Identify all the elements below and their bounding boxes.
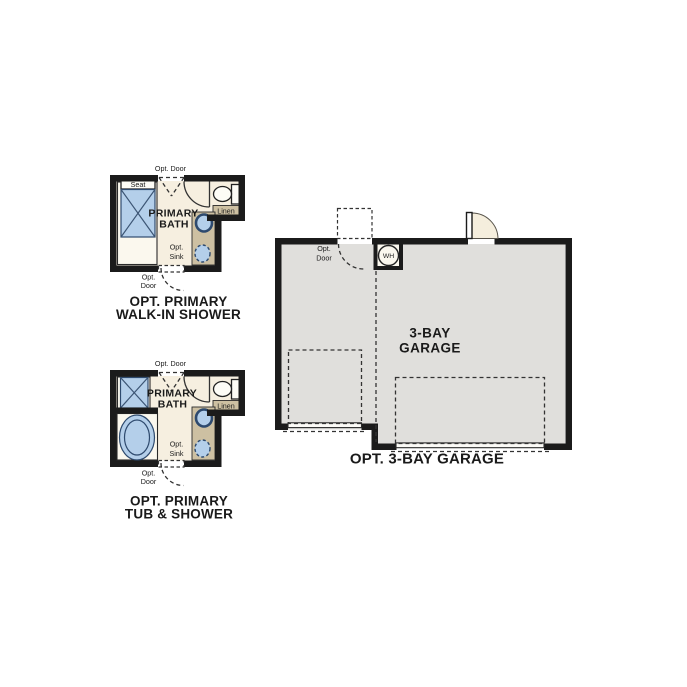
wall-segment	[184, 266, 222, 273]
opt-door-bottom-label: Door	[141, 477, 157, 486]
plan-title: WALK-IN SHOWER	[116, 307, 241, 322]
opt-door-label: Door	[316, 254, 332, 263]
wall-segment	[110, 408, 158, 414]
opt-door-bottom-label: Door	[141, 281, 157, 290]
toilet-bowl	[214, 382, 232, 397]
wall-segment	[372, 444, 397, 451]
garage-plan: Opt. Door WH 3-BAY GARAGE OPT. 3-BAY GAR…	[275, 209, 572, 468]
opt-door-top-label: Opt. Door	[155, 359, 187, 368]
wall-segment	[544, 444, 572, 451]
wall-segment	[566, 238, 573, 450]
opt-sink-dashed	[195, 245, 210, 262]
wall-segment	[110, 175, 117, 272]
room-label: 3-BAY	[409, 326, 450, 341]
opt-door-label: Opt.	[317, 244, 331, 253]
tub-shower-plan: Opt. Door PRIMARY BATH Linen Opt. Sink O…	[110, 359, 245, 522]
opt-door-dashed-opening	[338, 209, 373, 239]
opt-door-opening-bottom	[159, 266, 185, 273]
walkin-shower-plan: Opt. Door Seat PRIMARY BATH Linen Opt. S…	[110, 164, 245, 322]
opt-door-top-label: Opt. Door	[155, 164, 187, 173]
entry-door-swing	[472, 213, 498, 239]
wall-segment	[110, 461, 158, 468]
opt-sink-label: Sink	[170, 449, 184, 458]
opt-sink-dashed	[195, 440, 210, 457]
wall-segment	[275, 424, 288, 431]
wall-segment	[184, 175, 245, 182]
room-label: BATH	[159, 219, 189, 231]
toilet-bowl	[214, 187, 232, 202]
opt-sink-label: Sink	[170, 252, 184, 261]
linen-label: Linen	[217, 402, 235, 411]
room-label: GARAGE	[399, 341, 461, 356]
wall-segment	[495, 238, 573, 245]
wall-segment	[239, 175, 246, 221]
wall-segment	[110, 370, 158, 377]
floorplan-canvas: Opt. Door Seat PRIMARY BATH Linen Opt. S…	[0, 0, 687, 687]
opt-door-opening-bottom	[159, 461, 185, 468]
wall-segment	[184, 370, 245, 377]
wall-segment	[215, 215, 222, 273]
water-heater-label: WH	[383, 253, 394, 260]
plan-title: OPT. 3-BAY GARAGE	[350, 451, 504, 468]
linen-label: Linen	[217, 207, 235, 216]
plan-title: TUB & SHOWER	[125, 507, 233, 522]
wall-segment	[362, 424, 373, 431]
entry-door-leaf	[467, 213, 473, 239]
wall-segment	[110, 370, 117, 467]
opt-sink-label: Opt.	[170, 440, 184, 449]
floorplan-page: Opt. Door Seat PRIMARY BATH Linen Opt. S…	[0, 0, 687, 687]
opt-sink-label: Opt.	[170, 243, 184, 252]
wall-segment	[239, 370, 246, 416]
seat-label: Seat	[131, 180, 146, 189]
room-label: BATH	[158, 399, 188, 411]
wall-segment	[184, 461, 222, 468]
wall-segment	[215, 410, 222, 468]
wall-segment	[110, 266, 158, 273]
wall-segment	[275, 238, 282, 430]
